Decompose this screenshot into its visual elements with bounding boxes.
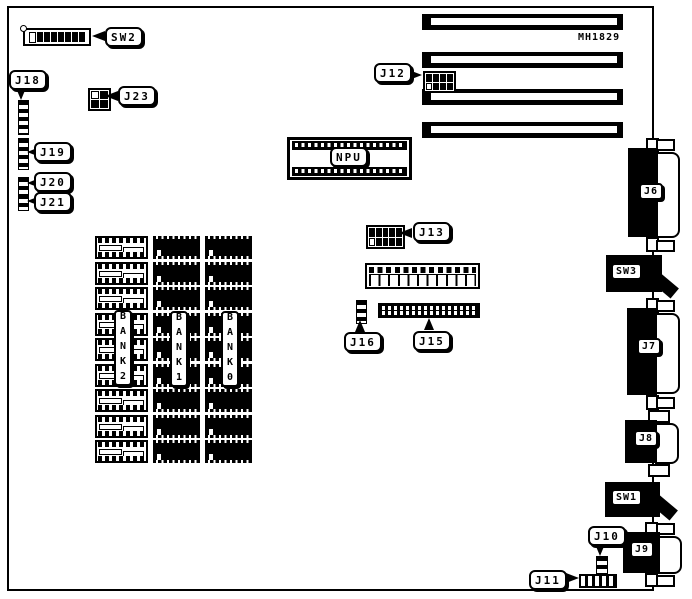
sw2-label: SW2 <box>105 27 143 47</box>
socket-pin-row <box>292 167 407 176</box>
motherboard-diagram: MH1829 SW2 J18 J23 J19 J20 J21 J12 NPU J… <box>0 0 692 599</box>
memory-chip <box>205 287 252 310</box>
mounting-bracket <box>648 464 670 477</box>
sw3-label: SW3 <box>611 263 642 280</box>
label-pointer <box>424 318 434 330</box>
label-pointer <box>566 573 579 583</box>
memory-socket <box>95 262 148 285</box>
memory-chip <box>205 440 252 463</box>
sw1-label: SW1 <box>611 489 642 506</box>
j23-label: J23 <box>118 86 156 106</box>
j6-label: J6 <box>639 183 663 200</box>
memory-chip <box>153 287 200 310</box>
memory-socket <box>95 287 148 310</box>
mounting-bracket <box>656 300 675 312</box>
j18-connector <box>18 100 29 135</box>
memory-chip <box>205 415 252 438</box>
isa-slot <box>422 52 623 68</box>
j15-label: J15 <box>413 331 451 351</box>
j8-outline <box>655 423 679 464</box>
mounting-bracket <box>656 575 675 587</box>
memory-chip <box>205 236 252 259</box>
j20-label: J20 <box>34 172 72 192</box>
j12-label: J12 <box>374 63 412 83</box>
edge-connector <box>365 263 480 289</box>
memory-chip <box>153 262 200 285</box>
j15-connector <box>378 303 480 318</box>
bank2-label: BANK2 <box>114 310 132 386</box>
j11-label: J11 <box>529 570 567 590</box>
label-pointer <box>92 31 105 41</box>
j7-label: J7 <box>637 338 661 355</box>
j9-label: J9 <box>630 541 654 558</box>
mounting-bracket <box>656 397 675 409</box>
memory-chip <box>153 440 200 463</box>
j18-label: J18 <box>9 70 47 90</box>
label-pointer <box>355 320 365 332</box>
memory-socket <box>95 440 148 463</box>
j10-label: J10 <box>588 526 626 546</box>
j13-label: J13 <box>413 222 451 242</box>
j9-dsub-outline <box>657 536 682 574</box>
sw2-dip-switch <box>23 28 91 46</box>
j11-connector <box>579 574 617 588</box>
j19-label: J19 <box>34 142 72 162</box>
memory-socket <box>95 415 148 438</box>
memory-socket <box>95 389 148 412</box>
label-pointer <box>105 91 118 101</box>
memory-chip <box>205 389 252 412</box>
memory-chip <box>153 415 200 438</box>
memory-chip <box>205 262 252 285</box>
bank1-label: BANK1 <box>170 311 188 387</box>
memory-socket <box>95 236 148 259</box>
mounting-bracket <box>656 240 675 252</box>
isa-slot <box>422 14 623 30</box>
memory-chip <box>153 236 200 259</box>
j8-label: J8 <box>634 430 658 447</box>
j21-label: J21 <box>34 192 72 212</box>
memory-chip <box>153 389 200 412</box>
bank0-label: BANK0 <box>221 311 239 387</box>
mounting-bracket <box>656 139 675 151</box>
j12-connector <box>423 71 456 93</box>
npu-label: NPU <box>330 147 368 167</box>
isa-slot <box>422 122 623 138</box>
label-pointer <box>399 228 412 238</box>
j16-label: J16 <box>344 332 382 352</box>
pin1-dot <box>20 25 27 32</box>
part-number: MH1829 <box>578 32 620 43</box>
